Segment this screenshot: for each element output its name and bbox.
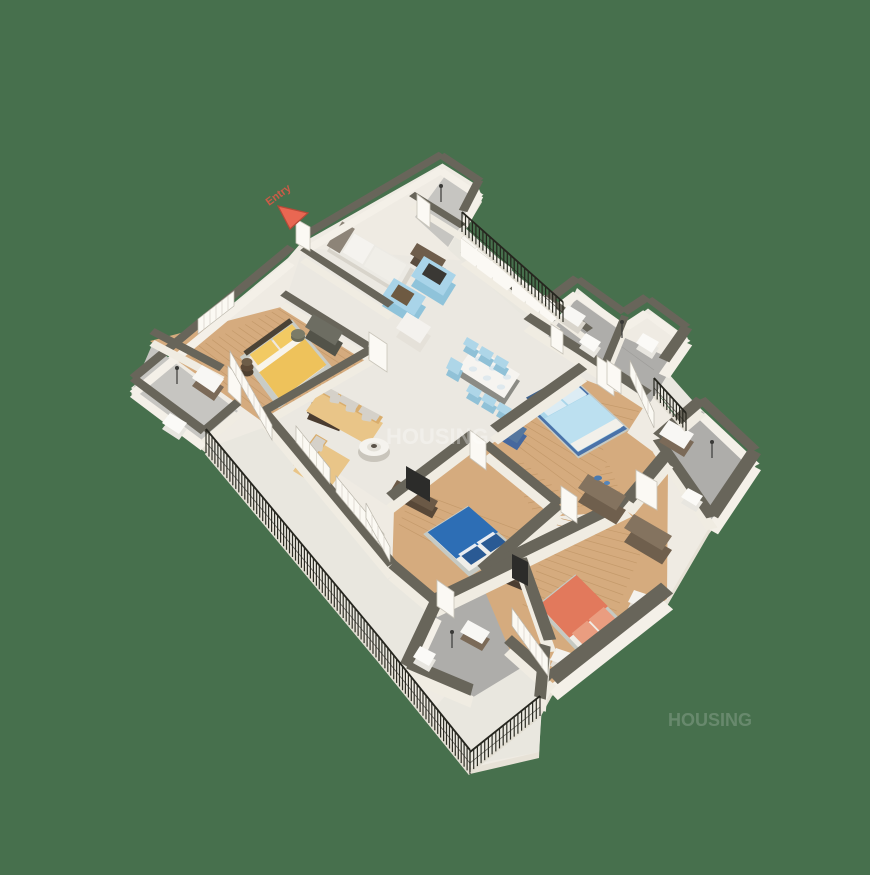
svg-text:HOUSING: HOUSING (386, 424, 489, 449)
svg-text:HOUSING: HOUSING (668, 710, 752, 730)
